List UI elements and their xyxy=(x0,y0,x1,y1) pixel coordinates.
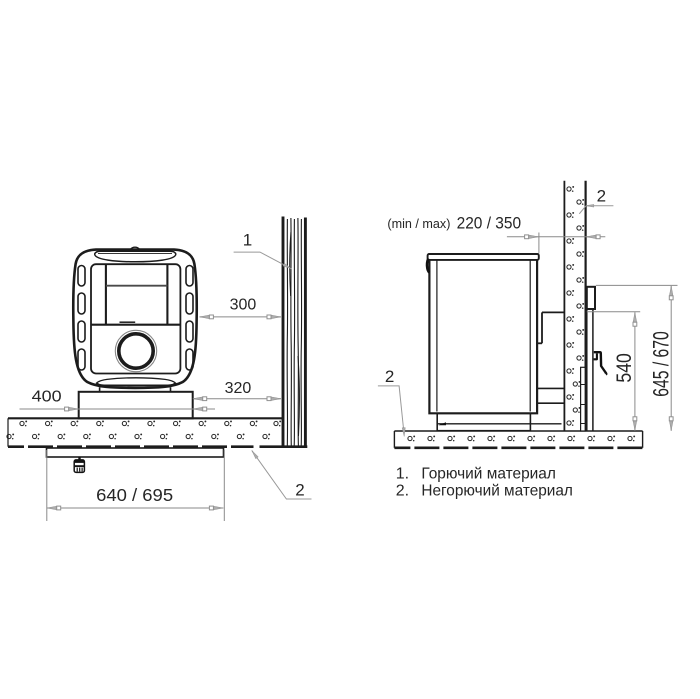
svg-text:220 / 350: 220 / 350 xyxy=(457,214,521,232)
svg-text:2: 2 xyxy=(295,481,304,500)
svg-text:(min / max): (min / max) xyxy=(387,216,450,231)
svg-text:645 / 670: 645 / 670 xyxy=(650,331,674,397)
svg-text:540: 540 xyxy=(612,353,636,382)
svg-text:Негорючий материал: Негорючий материал xyxy=(421,483,573,500)
svg-text:640 / 695: 640 / 695 xyxy=(96,485,173,505)
svg-text:1: 1 xyxy=(243,231,252,250)
svg-text:1.: 1. xyxy=(396,466,409,483)
svg-text:Горючий материал: Горючий материал xyxy=(421,466,556,483)
svg-text:320: 320 xyxy=(225,380,252,397)
svg-text:2: 2 xyxy=(385,367,394,386)
svg-text:300: 300 xyxy=(230,296,257,313)
svg-text:400: 400 xyxy=(32,389,62,406)
svg-text:2: 2 xyxy=(597,186,606,205)
svg-text:2.: 2. xyxy=(396,483,409,500)
